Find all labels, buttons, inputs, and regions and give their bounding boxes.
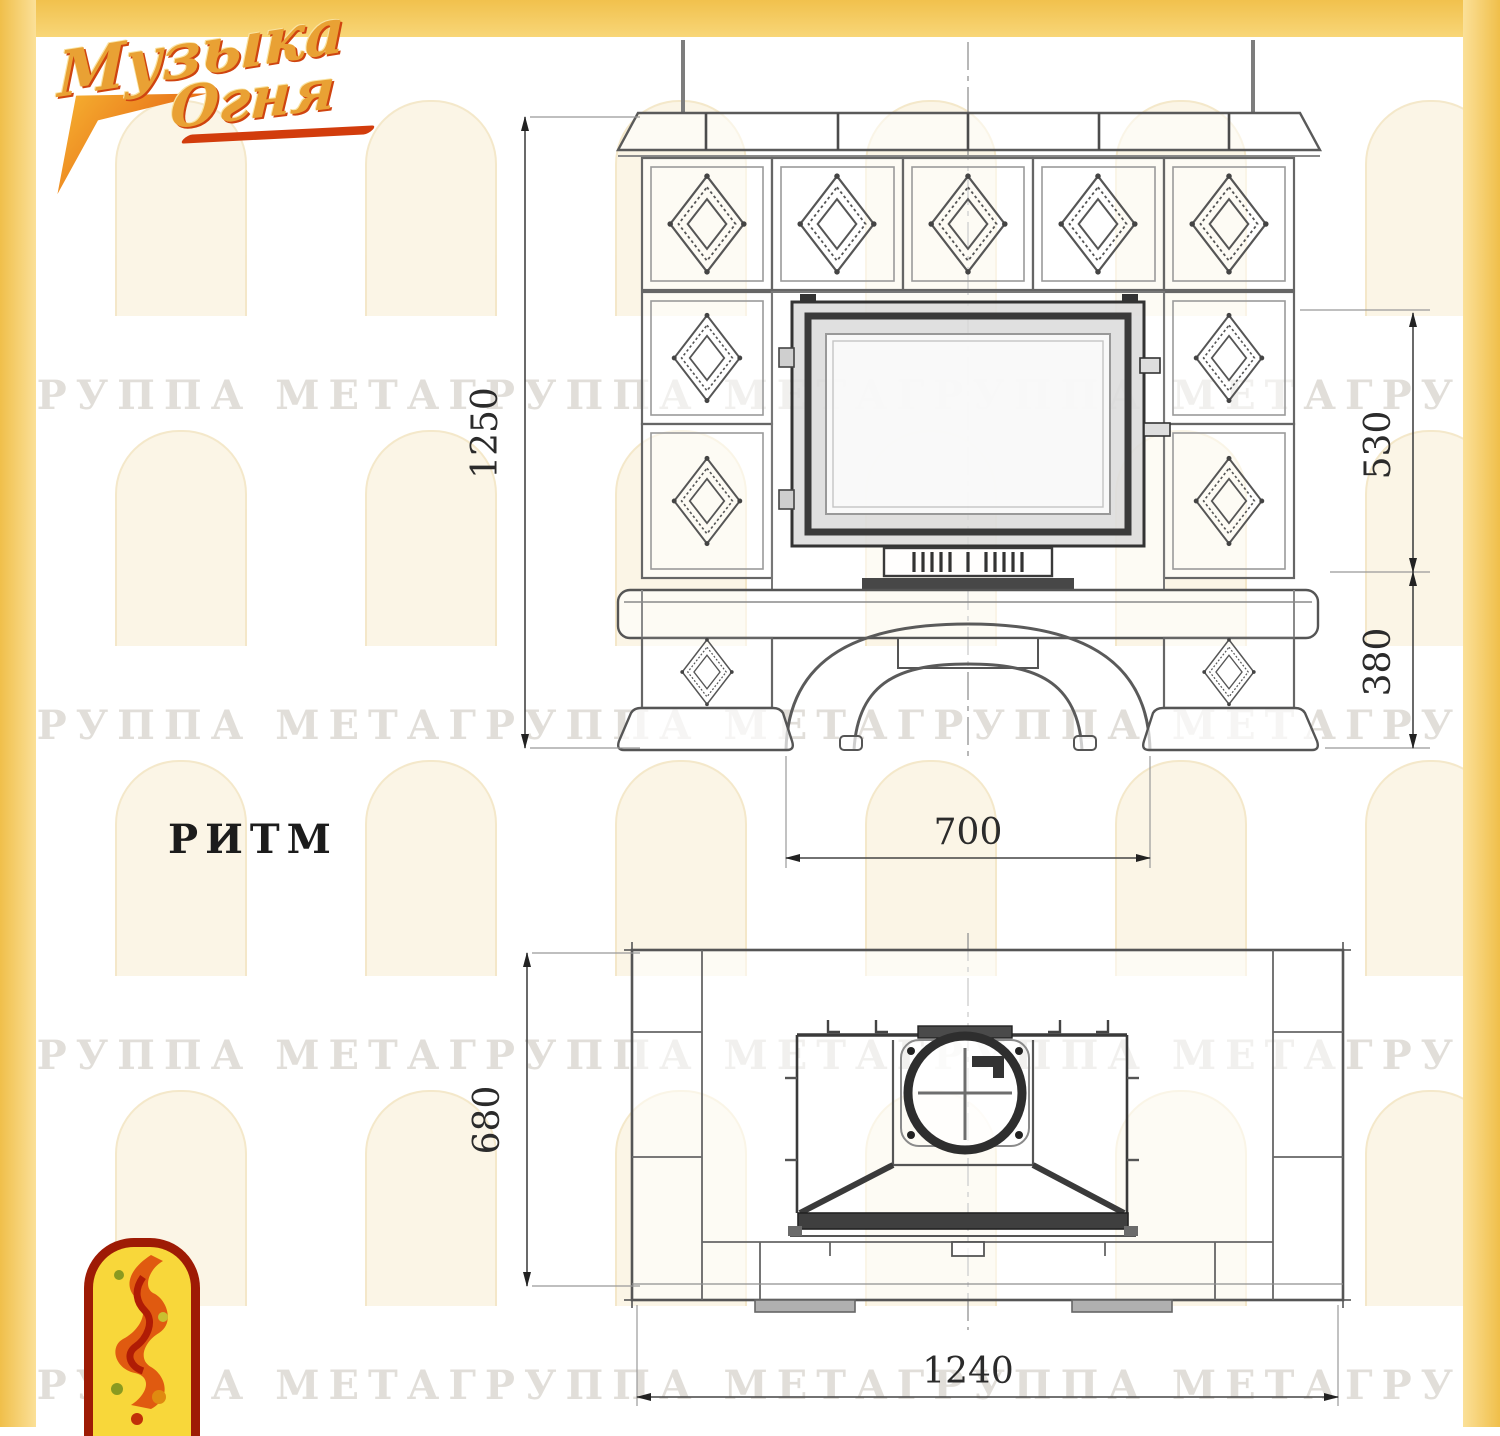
model-name-label: РИТМ — [168, 816, 338, 863]
dimension-firebox-height: 530 — [1300, 310, 1430, 572]
svg-text:700: 700 — [934, 812, 1003, 853]
door-hinge-top — [779, 348, 794, 367]
vent-grille — [862, 548, 1074, 590]
page-border-left — [0, 0, 36, 1427]
dimension-total-height: 1250 — [465, 117, 640, 748]
page-border-right — [1463, 0, 1500, 1427]
technical-drawing: 1250 530 380 700 — [0, 0, 1500, 1427]
dimension-depth: 680 — [467, 953, 640, 1286]
firebox-door — [772, 292, 1170, 590]
door-handle — [1140, 358, 1160, 373]
door-latch — [1144, 423, 1170, 436]
door-hinge-bottom — [779, 490, 794, 509]
svg-text:530: 530 — [1358, 411, 1399, 480]
dimension-width: 1240 — [637, 1305, 1338, 1406]
svg-text:380: 380 — [1358, 628, 1399, 697]
flame-figure — [93, 1247, 191, 1436]
tile-column-right — [1164, 292, 1294, 578]
mantel-shelf — [618, 590, 1318, 638]
svg-text:1240: 1240 — [922, 1351, 1014, 1392]
plan-foot-right — [1072, 1300, 1172, 1312]
brand-logo: Музыка Огня — [22, 2, 322, 162]
dimension-opening-width: 700 — [786, 756, 1150, 868]
dimension-base-height: 380 — [1325, 572, 1430, 748]
page: { "brand": { "logo_line1": "Музыка", "lo… — [0, 0, 1500, 1427]
tile-column-left — [642, 292, 772, 578]
plan-foot-left — [755, 1300, 855, 1312]
tile-row-top — [642, 158, 1294, 290]
plan-view-drawing: 680 1240 — [467, 933, 1351, 1406]
front-elevation-drawing: 1250 530 380 700 — [465, 40, 1430, 868]
svg-text:680: 680 — [467, 1086, 508, 1155]
flame-window-icon — [84, 1238, 200, 1436]
svg-text:1250: 1250 — [465, 387, 506, 479]
